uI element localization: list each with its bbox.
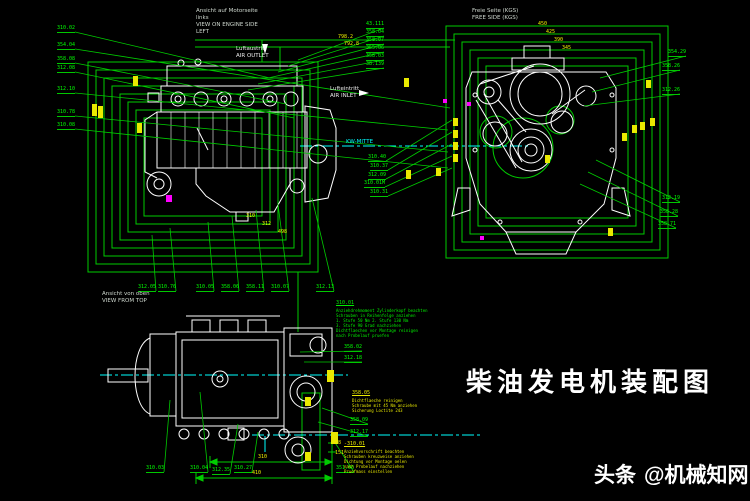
callout-label: 358.06 (221, 285, 239, 292)
callout-label: 310.27 (234, 466, 252, 473)
highlight-marker (305, 397, 311, 406)
callout-label: 358.26 (662, 64, 680, 71)
annotation-line: AIR INLET (330, 93, 359, 100)
callout-label: 310.05 (196, 285, 214, 292)
highlight-marker (331, 432, 338, 444)
callout-label: 358.08 (57, 57, 75, 64)
accent-marker (443, 99, 447, 103)
dimension-value: 498 (278, 230, 287, 235)
callout-label: 358.03 (366, 54, 384, 61)
dimension-value: 312 (262, 222, 271, 227)
annotation-line: Ansicht von oben (102, 291, 150, 298)
dimension-value: 410 (252, 471, 261, 476)
accent-marker (480, 236, 484, 240)
callout-label: 312.35 (212, 468, 230, 475)
dimension-value: 792.8 (344, 42, 359, 47)
accent-marker (467, 102, 471, 106)
highlight-marker (404, 78, 409, 87)
highlight-marker (92, 104, 97, 116)
callout-label: 358.28 (660, 210, 678, 217)
annotation-line: LEFT (196, 29, 258, 36)
dimension-value: 425 (546, 30, 555, 35)
highlight-marker (436, 168, 441, 176)
highlight-marker (327, 370, 334, 382)
callout-label: 358.02 (344, 345, 362, 352)
label-layer: 310.02354.04358.08312.08312.10310.78310.… (0, 0, 750, 501)
annotation-text: Freie Seite (KGS)FREE SIDE (KGS) (472, 8, 518, 22)
callout-label: 310.01M (364, 181, 385, 188)
callout-label: 310.04 (190, 466, 208, 473)
callout-label: 310.37 (370, 164, 388, 171)
dimension-value: 310 (246, 214, 255, 219)
annotation-text: LufteintrittAIR INLET (330, 86, 359, 100)
note-line: Pruefmass einstellen (344, 469, 414, 474)
cad-drawing-canvas: 310.02354.04358.08312.08312.10310.78310.… (0, 0, 750, 501)
note-line: Sicherung Loctite 243 (352, 408, 417, 413)
note-header: -310.01 (344, 441, 414, 448)
annotation-line: Ansicht auf Motorseite (196, 8, 258, 15)
dimension-value: 310 (258, 455, 267, 460)
dimension-value: 450 (538, 22, 547, 27)
highlight-marker (646, 80, 651, 88)
callout-label: 312.13 (316, 285, 334, 292)
note-header: 358.05 (352, 390, 417, 397)
highlight-marker (622, 133, 627, 141)
annotation-text: Ansicht von obenVIEW FROM TOP (102, 291, 150, 305)
callout-label: 310.40 (368, 155, 386, 162)
callout-label: 355.06 (366, 46, 384, 53)
callout-label: 358.07 (366, 38, 384, 45)
callout-label: 310.08 (57, 123, 75, 130)
highlight-marker (133, 76, 138, 86)
annotation-line: VIEW ON ENGINE SIDE (196, 22, 258, 29)
callout-label: 358.04 (366, 30, 384, 37)
note-block: -310.01Anziehvorschrift beachtenSchraube… (344, 441, 414, 474)
callout-label: 310.78 (57, 110, 75, 117)
watermark-brand-toutiao: 头条 (594, 464, 636, 487)
right-arrow-icon (359, 90, 369, 96)
callout-label: 310.02 (57, 26, 75, 33)
accent-marker (166, 195, 172, 202)
dimension-value: 390 (554, 38, 563, 43)
note-block: 358.05Dichtflaeche reinigenSchraube mit … (352, 390, 417, 413)
highlight-marker (608, 228, 613, 236)
highlight-marker (406, 170, 411, 179)
note-line: Anziehdrehmoment Zylinderkopf beachten (336, 308, 428, 313)
callout-label: 358.71 (658, 222, 676, 229)
highlight-marker (137, 123, 142, 133)
highlight-marker (640, 122, 645, 130)
dimension-value: 798.2 (338, 35, 353, 40)
callout-label: 358.09 (350, 418, 368, 425)
callout-label: 38.139 (366, 62, 384, 69)
dimension-value: 345 (562, 46, 571, 51)
callout-label: 358.11 (246, 285, 264, 292)
note-header: 310.01 (336, 300, 428, 307)
highlight-marker (305, 452, 311, 461)
callout-label: 43.111 (366, 22, 384, 29)
down-arrow-icon (262, 44, 268, 54)
callout-label: 312.26 (662, 88, 680, 95)
note-block: 310.01Anziehdrehmoment Zylinderkopf beac… (336, 300, 428, 339)
highlight-marker (98, 106, 103, 118)
callout-label: 354.29 (668, 50, 686, 57)
callout-label: 312.09 (368, 173, 386, 180)
annotation-line: Freie Seite (KGS) (472, 8, 518, 15)
annotation-line: KW-MITTE (346, 139, 373, 146)
callout-label: 310.03 (146, 466, 164, 473)
annotation-text: Ansicht auf MotorseitelinksVIEW ON ENGIN… (196, 8, 258, 36)
annotation-line: links (196, 15, 258, 22)
watermark-handle: @机械知网 (644, 464, 748, 487)
annotation-line: Lufteintritt (330, 86, 359, 93)
callout-label: 354.04 (57, 43, 75, 50)
callout-label: 312.10 (57, 87, 75, 94)
callout-label: 310.07 (271, 285, 289, 292)
drawing-title: 柴油发电机装配图 (466, 362, 714, 399)
callout-label: 312.18 (344, 356, 362, 363)
callout-label: 310.31 (370, 190, 388, 197)
callout-label: 312.19 (662, 196, 680, 203)
annotation-line: VIEW FROM TOP (102, 298, 150, 305)
watermark: 头条@机械知网 (594, 459, 748, 489)
dimension-value: 151 (335, 451, 344, 456)
highlight-marker (453, 142, 458, 150)
highlight-marker (453, 118, 458, 126)
callout-label: 312.08 (57, 66, 75, 73)
annotation-text: KW-MITTE (346, 139, 373, 146)
annotation-line: FREE SIDE (KGS) (472, 15, 518, 22)
highlight-marker (453, 130, 458, 138)
highlight-marker (545, 155, 550, 163)
callout-label: 312.17 (350, 430, 368, 437)
callout-label: 310.76 (158, 285, 176, 292)
note-line: Anziehvorschrift beachten (344, 449, 414, 454)
highlight-marker (632, 125, 637, 133)
note-line: nach Probelauf pruefen (336, 333, 428, 338)
highlight-marker (453, 154, 458, 162)
highlight-marker (650, 118, 655, 126)
